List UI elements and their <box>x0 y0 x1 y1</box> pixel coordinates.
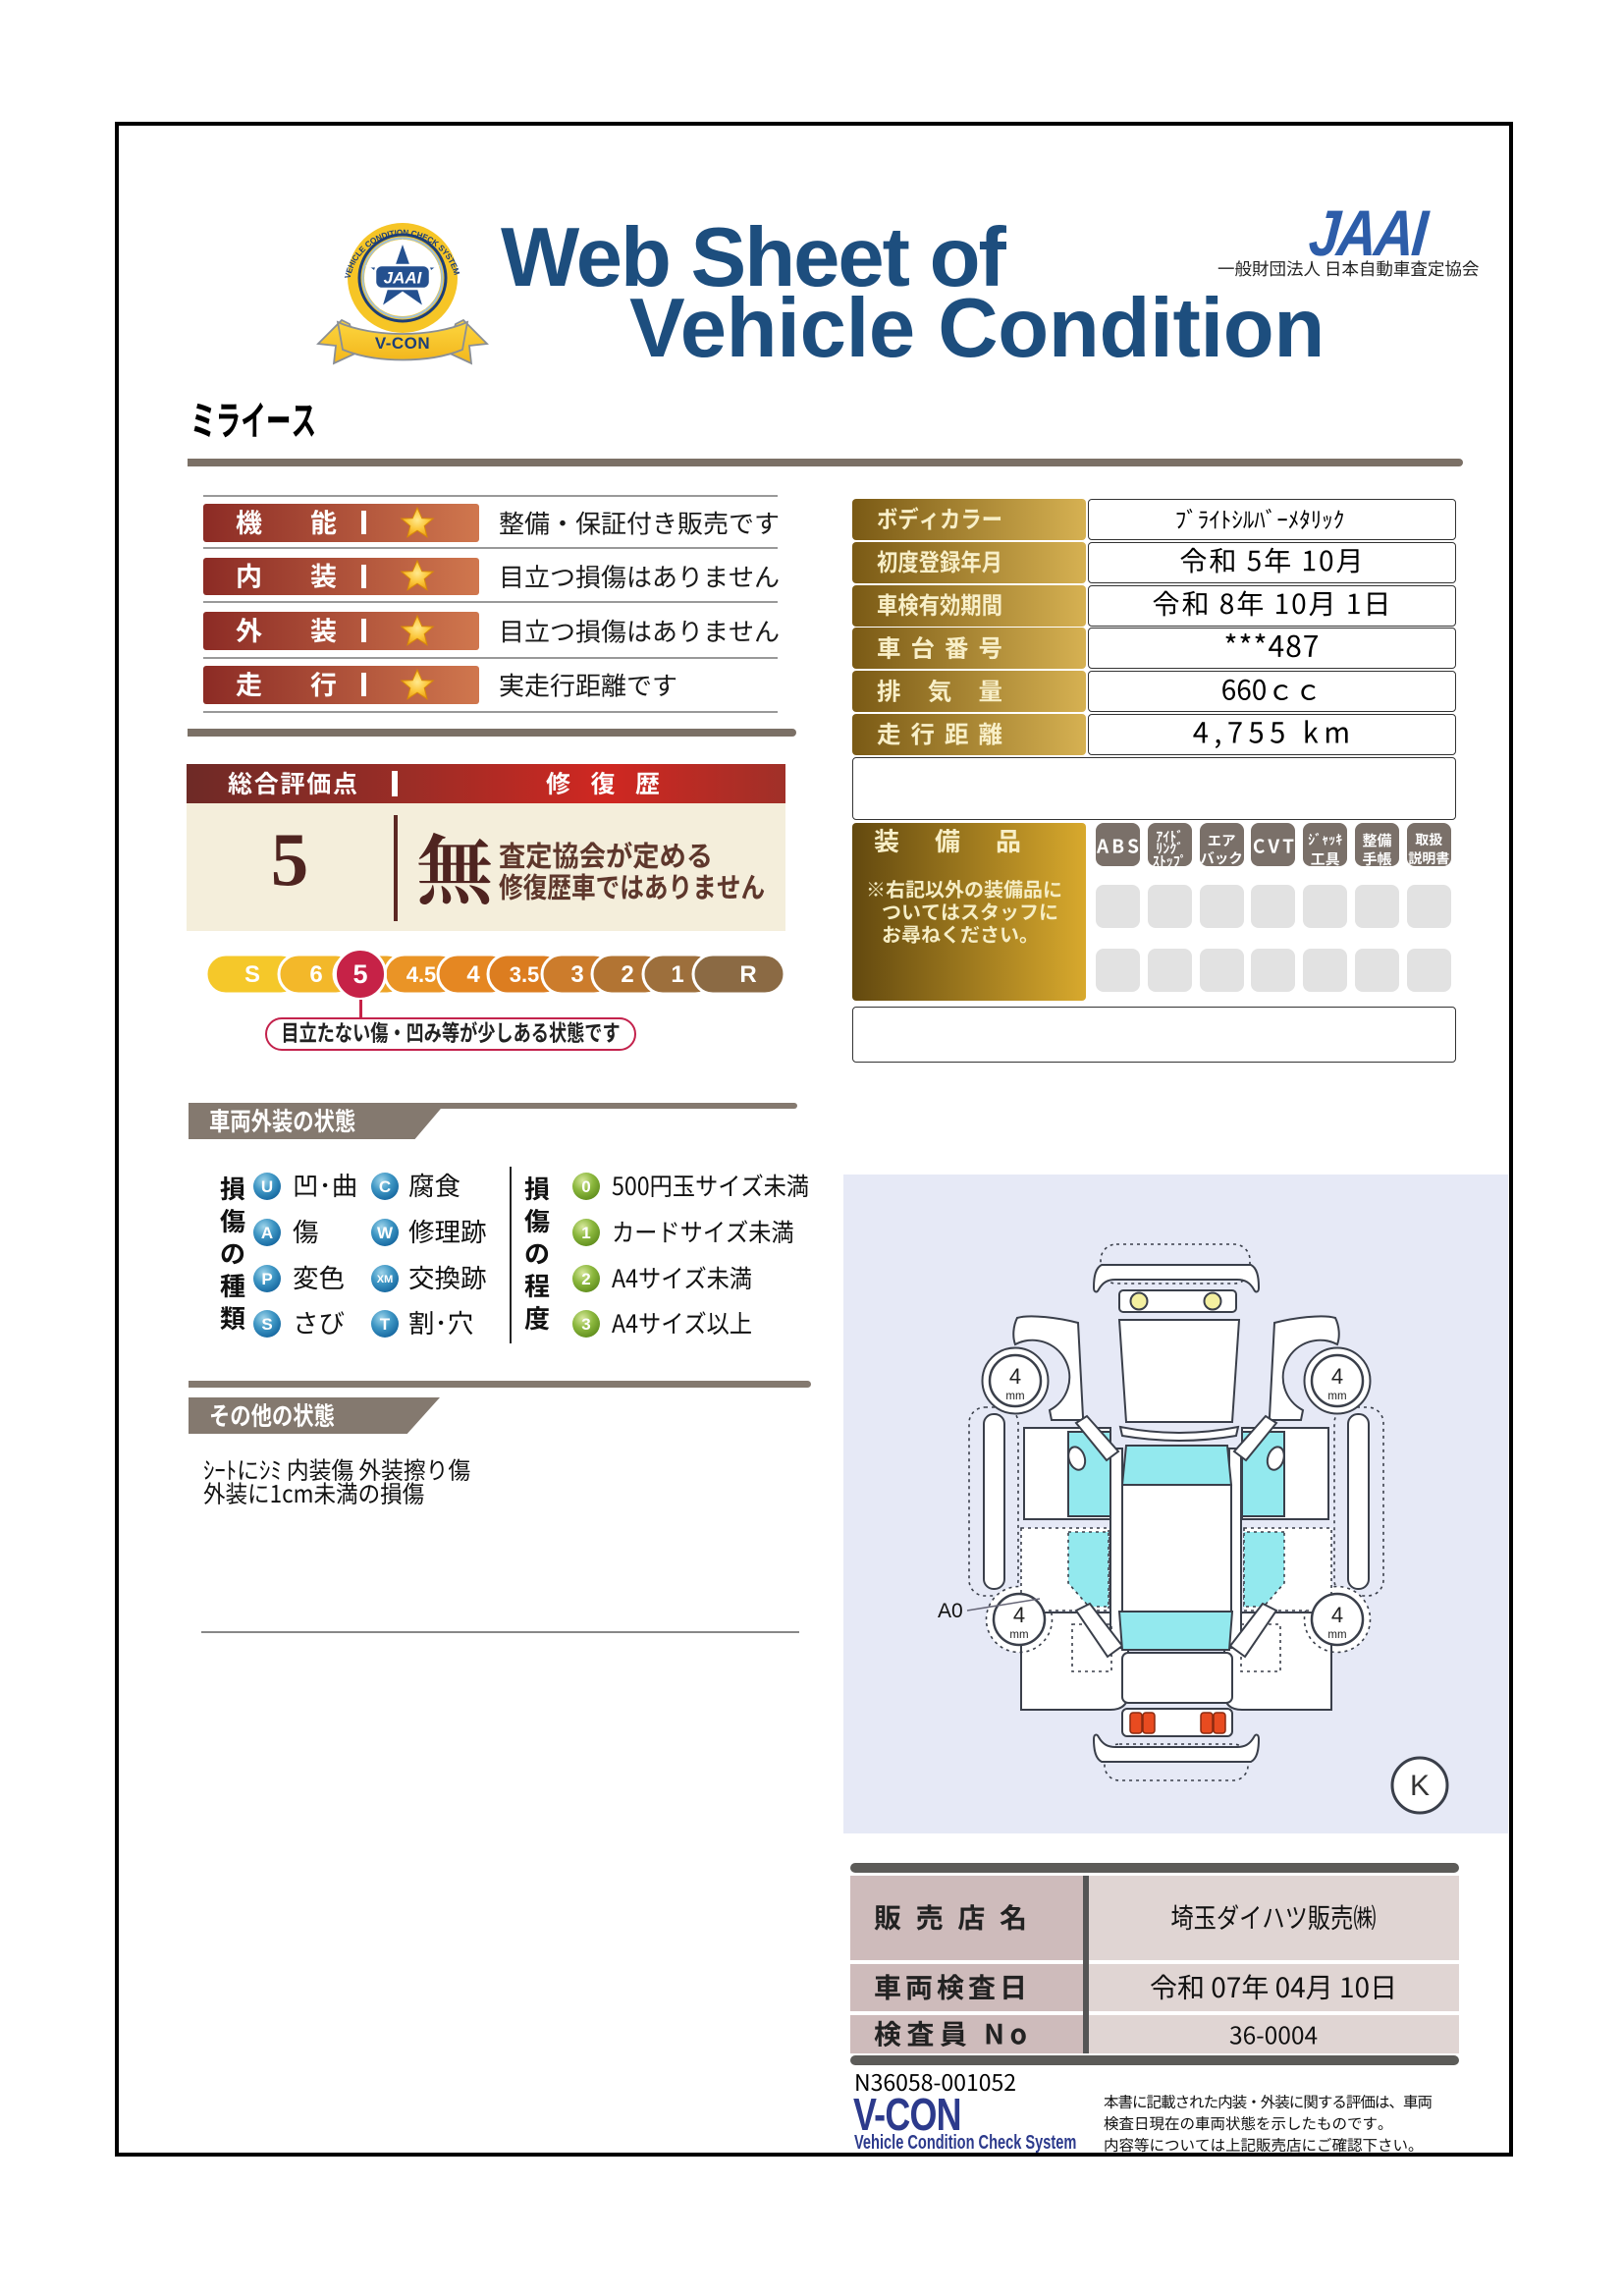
svg-text:4: 4 <box>1331 1603 1343 1627</box>
svg-text:P: P <box>261 1270 272 1288</box>
svg-text:W: W <box>377 1224 394 1242</box>
svg-text:mm: mm <box>1327 1391 1346 1402</box>
svg-text:C: C <box>379 1177 391 1196</box>
svg-text:mm: mm <box>1327 1629 1346 1641</box>
svg-text:U: U <box>261 1177 273 1196</box>
svg-text:XM: XM <box>377 1274 394 1285</box>
svg-text:4: 4 <box>1331 1364 1343 1389</box>
svg-text:4: 4 <box>1009 1364 1021 1389</box>
svg-text:0: 0 <box>581 1177 590 1196</box>
svg-text:A: A <box>261 1224 273 1242</box>
svg-text:S: S <box>261 1315 272 1334</box>
svg-text:2: 2 <box>581 1270 590 1288</box>
svg-text:4: 4 <box>1013 1603 1025 1627</box>
svg-text:mm: mm <box>1009 1629 1028 1641</box>
svg-text:K: K <box>1410 1770 1430 1802</box>
svg-text:3: 3 <box>581 1315 590 1334</box>
svg-text:1: 1 <box>581 1224 590 1242</box>
svg-text:A0: A0 <box>938 1600 963 1622</box>
svg-text:mm: mm <box>1005 1391 1024 1402</box>
svg-text:T: T <box>380 1315 391 1334</box>
